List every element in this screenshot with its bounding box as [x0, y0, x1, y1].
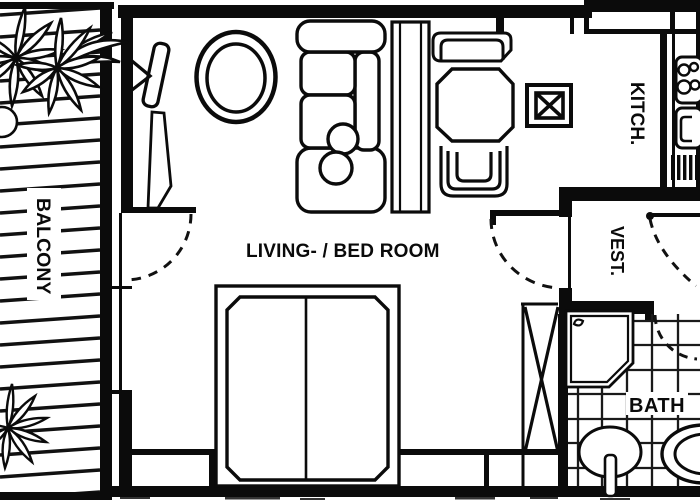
svg-text:VEST.: VEST. — [607, 226, 627, 276]
svg-text:BALCONY: BALCONY — [32, 198, 54, 294]
svg-text:BATH: BATH — [629, 395, 685, 417]
svg-text:LIVING- / BED ROOM: LIVING- / BED ROOM — [246, 241, 440, 262]
svg-text:KITCH.: KITCH. — [626, 82, 647, 145]
